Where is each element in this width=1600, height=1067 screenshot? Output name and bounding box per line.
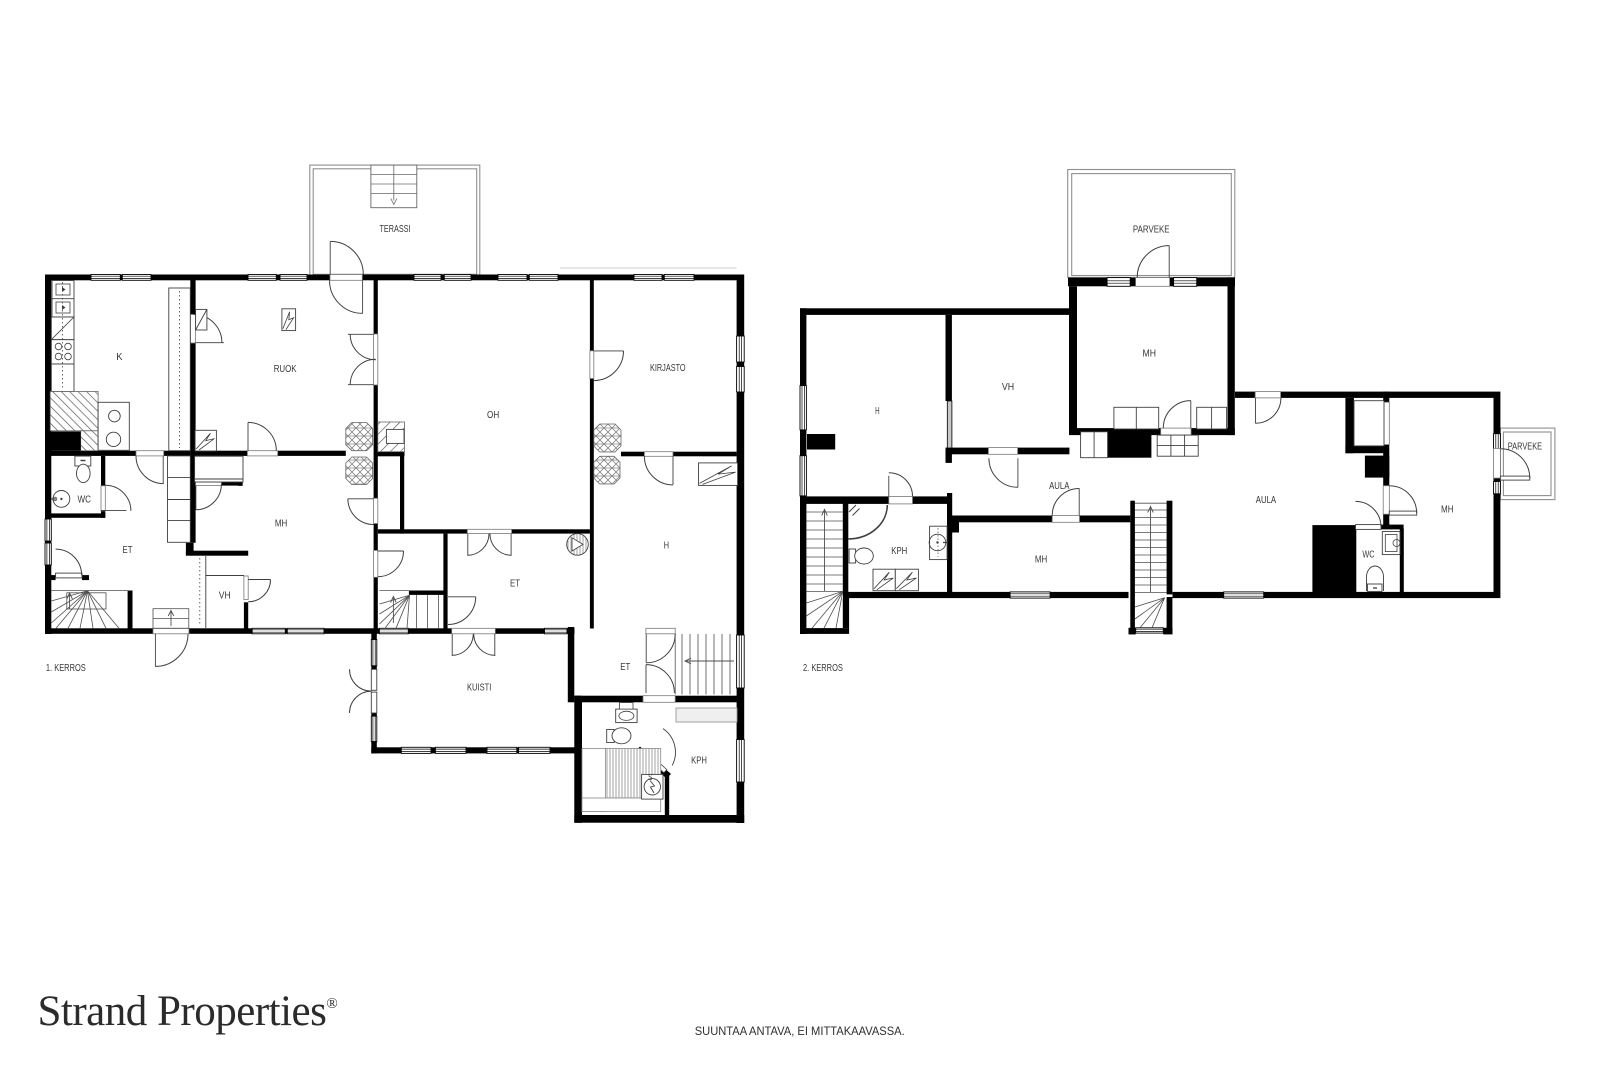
svg-text:MH: MH <box>1143 348 1157 359</box>
svg-text:PARVEKE: PARVEKE <box>1133 225 1170 236</box>
svg-text:MH: MH <box>1441 505 1454 516</box>
svg-text:ET: ET <box>510 579 521 590</box>
svg-text:KUISTI: KUISTI <box>467 682 491 693</box>
svg-text:ET: ET <box>123 545 134 556</box>
svg-text:MH: MH <box>1035 555 1047 566</box>
svg-text:MH: MH <box>275 518 287 529</box>
svg-text:2. KERROS: 2. KERROS <box>803 663 843 674</box>
svg-text:TERASSI: TERASSI <box>380 224 411 235</box>
svg-text:OH: OH <box>487 410 499 421</box>
svg-text:S: S <box>648 773 652 782</box>
svg-text:1. KERROS: 1. KERROS <box>46 663 86 674</box>
svg-text:K: K <box>116 352 122 363</box>
svg-text:KPH: KPH <box>691 756 707 767</box>
svg-text:PARVEKE: PARVEKE <box>1508 441 1542 452</box>
svg-text:AULA: AULA <box>1256 495 1276 506</box>
svg-text:H: H <box>875 406 880 417</box>
svg-text:Strand Properties®: Strand Properties® <box>38 988 338 1035</box>
svg-text:RUOK: RUOK <box>274 364 297 375</box>
svg-text:SUUNTAA ANTAVA, EI MITTAKAAVAS: SUUNTAA ANTAVA, EI MITTAKAAVASSA. <box>695 1024 905 1038</box>
svg-text:KIRJASTO: KIRJASTO <box>650 363 686 374</box>
svg-text:H: H <box>664 541 669 552</box>
svg-text:WC: WC <box>1362 550 1375 561</box>
svg-text:VH: VH <box>219 591 231 602</box>
svg-text:KPH: KPH <box>891 546 907 557</box>
svg-text:WC: WC <box>78 494 92 505</box>
svg-text:AULA: AULA <box>1049 481 1069 492</box>
svg-text:VH: VH <box>1002 382 1014 393</box>
svg-text:ET: ET <box>620 662 631 673</box>
